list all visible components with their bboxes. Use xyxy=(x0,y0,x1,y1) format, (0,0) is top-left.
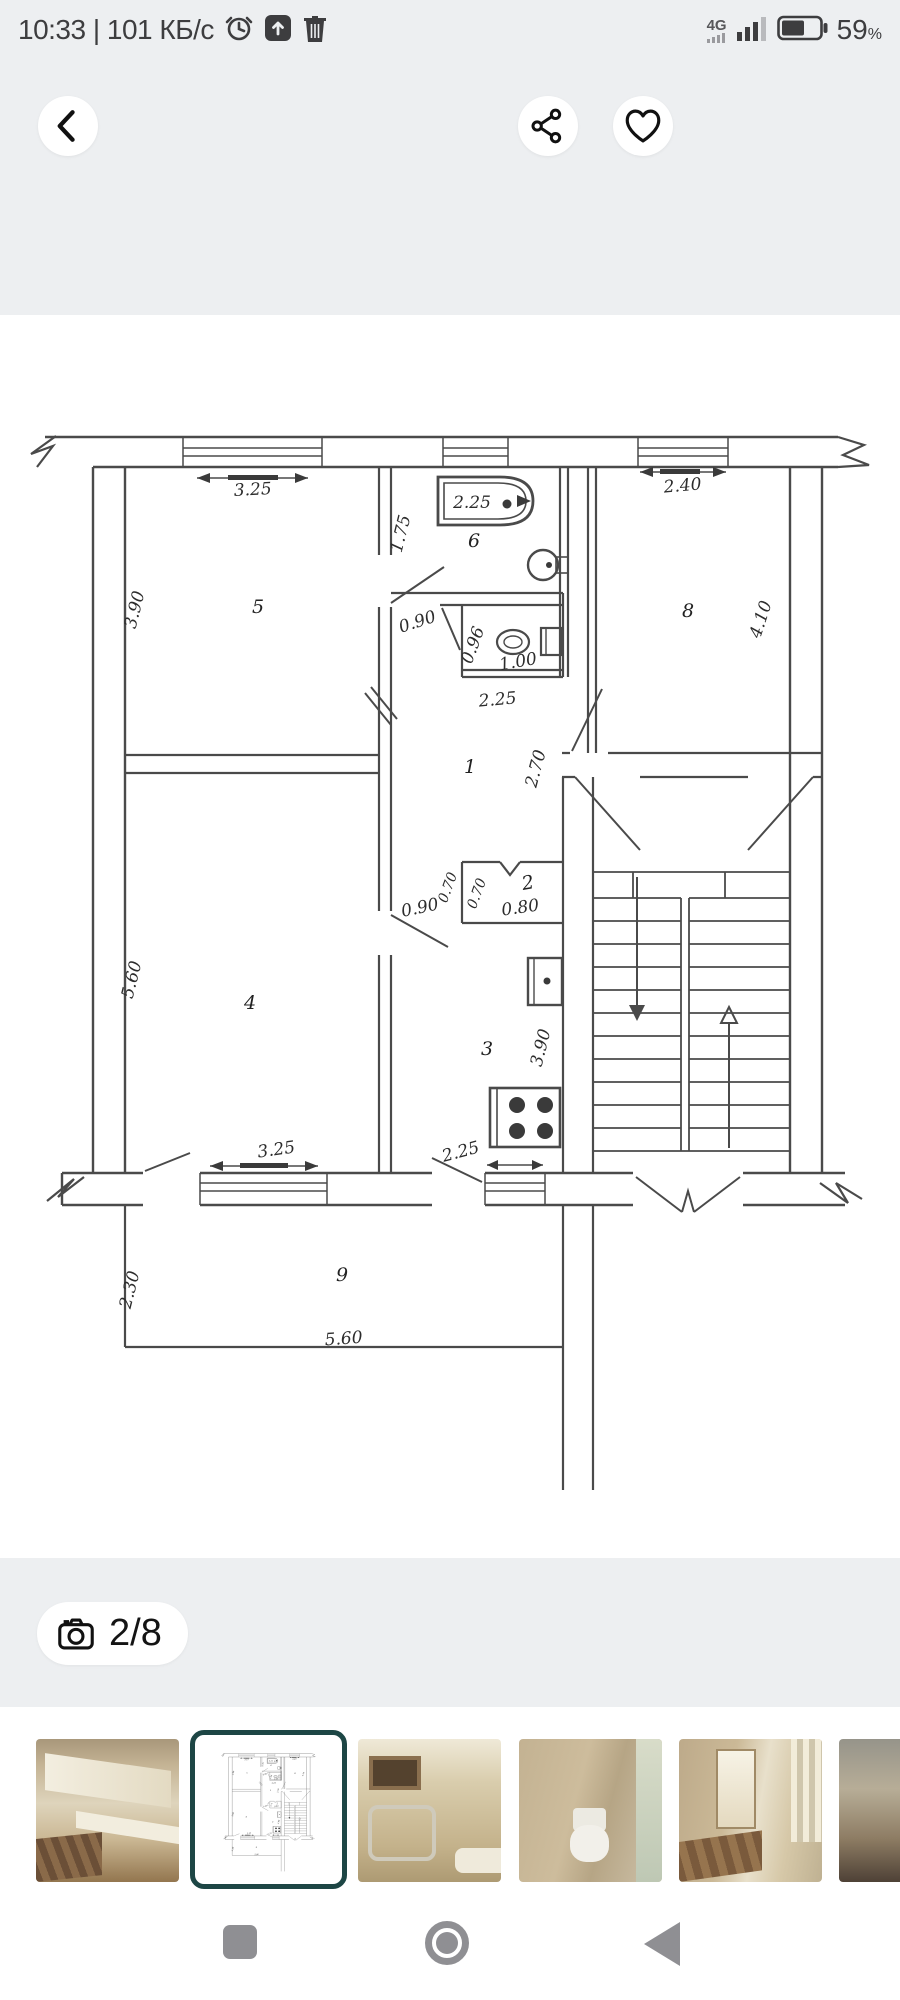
dim-kitchen-window: 2.25 xyxy=(439,1138,482,1167)
main-photo-floor-plan[interactable]: 5 6 8 1 2 3 4 9 3.25 3.90 2.25 1.75 0.90… xyxy=(0,315,900,1558)
back-triangle-icon[interactable] xyxy=(644,1922,680,1966)
home-circle-icon[interactable] xyxy=(425,1921,469,1965)
camera-icon xyxy=(57,1617,95,1651)
upload-icon xyxy=(264,14,292,47)
photo-counter-badge: 2/8 xyxy=(37,1602,188,1665)
status-bar: 10:33 | 101 КБ/с 4G xyxy=(0,0,900,60)
back-button[interactable] xyxy=(38,96,98,156)
listing-gallery-screen: 10:33 | 101 КБ/с 4G xyxy=(0,0,900,2000)
thumbnail-room-photo-partial[interactable] xyxy=(839,1739,900,1882)
dim-closet-width: 0.80 xyxy=(500,895,540,920)
back-chevron-icon xyxy=(46,104,90,148)
floor-plan-drawing: 5 6 8 1 2 3 4 9 3.25 3.90 2.25 1.75 0.90… xyxy=(0,315,900,1558)
thumbnail-kitchen-photo[interactable] xyxy=(36,1739,179,1882)
favorite-button[interactable] xyxy=(613,96,673,156)
kitchen-number: 3 xyxy=(481,1038,493,1060)
thumbnail-hallway-photo[interactable] xyxy=(679,1739,822,1882)
hallway-blinds-shape xyxy=(791,1739,822,1842)
recents-square-icon[interactable] xyxy=(223,1925,257,1959)
status-right: 4G 59% xyxy=(707,14,882,47)
dim-room4-height: 5.60 xyxy=(118,959,147,1001)
dim-room8-width: 2.40 xyxy=(662,474,703,497)
dim-kitchen-height: 3.90 xyxy=(527,1027,556,1069)
bathroom-number: 6 xyxy=(468,530,480,552)
hallway-door-shape xyxy=(716,1749,756,1829)
hallway-floor-shape xyxy=(679,1830,762,1882)
dim-room5-width: 3.25 xyxy=(233,479,272,501)
dim-wc-width: 2.25 xyxy=(477,688,517,711)
kitchen-cabinets-shape xyxy=(45,1753,171,1808)
gallery-top-area xyxy=(0,60,900,315)
thumbnail-strip xyxy=(0,1707,900,1900)
trash-icon xyxy=(302,13,328,48)
heart-icon xyxy=(622,105,664,147)
battery-icon xyxy=(777,14,829,47)
kitchen-floor-shape xyxy=(36,1832,102,1882)
sim2-bars-icon xyxy=(707,33,727,43)
toilet-glass-panel-shape xyxy=(636,1739,662,1882)
android-nav-bar xyxy=(0,1900,900,2000)
share-icon xyxy=(528,106,568,146)
dim-room4-window: 3.25 xyxy=(256,1138,296,1163)
dim-closet-b: 0.70 xyxy=(464,876,490,911)
closet-number: 2 xyxy=(519,871,536,895)
clock-and-speed: 10:33 | 101 КБ/с xyxy=(18,14,214,46)
dim-bathtub: 2.25 xyxy=(452,493,491,513)
share-button[interactable] xyxy=(518,96,578,156)
gallery-bottom-area: 2/8 xyxy=(0,1558,900,1707)
thumbnail-floor-plan-selected[interactable] xyxy=(190,1730,347,1889)
dim-balcony-height: 2.30 xyxy=(116,1269,145,1312)
signal-bars-icon xyxy=(737,15,769,46)
thumbnail-bathroom-photo[interactable] xyxy=(358,1739,501,1882)
photo-counter-text: 2/8 xyxy=(109,1612,162,1655)
room8-number: 8 xyxy=(682,600,694,622)
battery-percent: 59% xyxy=(837,14,882,46)
dim-balcony-width: 5.60 xyxy=(324,1328,363,1351)
room5-number: 5 xyxy=(252,596,264,618)
dim-room8-height: 4.10 xyxy=(746,598,777,641)
bathtub-shape xyxy=(455,1848,501,1874)
bathroom-window-shape xyxy=(369,1756,420,1790)
status-left: 10:33 | 101 КБ/с xyxy=(18,13,328,48)
dim-door-upper: 0.90 xyxy=(396,607,438,638)
alarm-icon xyxy=(224,13,254,48)
balcony-number: 9 xyxy=(336,1264,348,1286)
dim-closet-a: 0.70 xyxy=(435,870,461,905)
hall-number: 1 xyxy=(464,756,476,778)
dim-door-lower: 0.90 xyxy=(399,894,440,921)
network-type-label: 4G xyxy=(707,18,727,33)
dim-hall-right: 2.70 xyxy=(521,748,550,791)
floor-plan-thumbnail xyxy=(200,1740,337,1879)
network-indicator: 4G xyxy=(707,18,727,43)
toilet-bowl-shape xyxy=(570,1825,609,1862)
room4-number: 4 xyxy=(243,992,256,1014)
towel-rail-shape xyxy=(368,1805,436,1862)
thumbnail-toilet-photo[interactable] xyxy=(519,1739,662,1882)
